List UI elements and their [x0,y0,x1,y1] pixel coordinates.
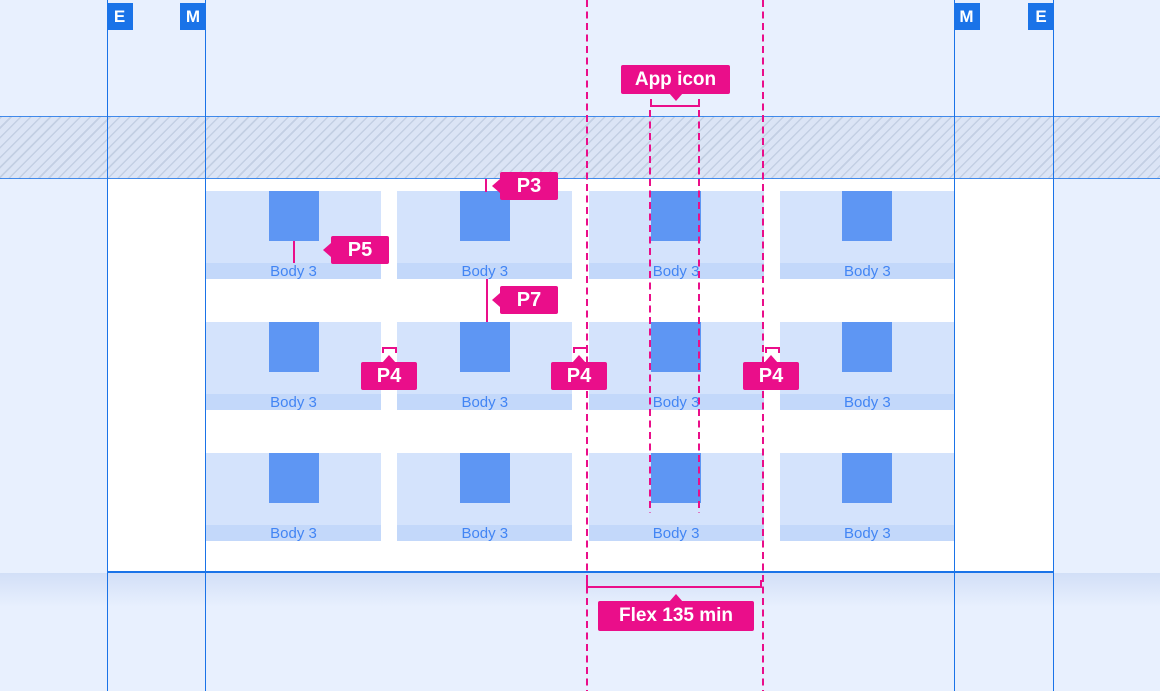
top-app-bar-hatched-region [0,116,1160,179]
margin-guide-line-right [954,0,956,691]
bottom-fade [0,573,1160,607]
pointer-left-icon [492,179,500,193]
label-p4-left: P4 [361,362,417,390]
card-caption: Body 3 [780,263,955,280]
label-app-icon: App icon [621,65,730,94]
label-p3: P3 [500,172,558,200]
pointer-up-icon [382,355,396,363]
card-caption: Body 3 [206,525,381,542]
p3-measure-tick [485,179,487,192]
column-gap-bracket-left [382,347,397,353]
label-flex-min-text: Flex 135 min [619,605,733,627]
card: Body 3 [206,453,381,541]
app-icon-placeholder [842,453,892,503]
card-caption: Body 3 [206,263,381,280]
app-icon-placeholder [651,322,701,372]
column-gap-bracket-middle [573,347,588,353]
label-p4-right: P4 [743,362,799,390]
p5-measure-tick [293,241,295,263]
pointer-up-icon [764,355,778,363]
column-gap-bracket-right [765,347,780,353]
app-icon-placeholder [269,453,319,503]
label-p7: P7 [500,286,558,314]
pointer-left-icon [323,243,331,257]
card: Body 3 [589,322,764,410]
edge-marker-e-right: E [1028,3,1054,30]
card-caption: Body 3 [397,394,572,411]
card: Body 3 [397,191,572,279]
card-caption: Body 3 [780,394,955,411]
card-caption: Body 3 [206,394,381,411]
app-icon-placeholder [269,191,319,241]
card: Body 3 [780,453,955,541]
label-p3-text: P3 [517,175,541,198]
card: Body 3 [397,322,572,410]
card: Body 3 [589,191,764,279]
margin-guide-line-left [205,0,207,691]
app-icon-placeholder [460,322,510,372]
card-caption: Body 3 [589,394,764,411]
label-p7-text: P7 [517,289,541,312]
label-p4-right-text: P4 [759,365,783,388]
app-icon-guide-right [698,110,700,513]
card-caption: Body 3 [397,525,572,542]
card-caption: Body 3 [589,525,764,542]
app-icon-guide-left [649,110,651,513]
card: Body 3 [206,191,381,279]
app-icon-placeholder [460,453,510,503]
pointer-up-icon [572,355,586,363]
edge-guide-line-right [1053,0,1055,691]
pointer-up-icon [669,594,683,602]
card: Body 3 [397,453,572,541]
margin-marker-m-right: M [954,3,980,30]
layout-spec-canvas: Body 3 Body 3 Body 3 Body 3 Body 3 Body … [0,0,1160,691]
card: Body 3 [780,322,955,410]
flex-width-bracket [586,580,762,588]
edge-guide-line-left [107,0,109,691]
app-icon-placeholder [842,191,892,241]
label-app-icon-text: App icon [635,69,716,91]
label-flex-min: Flex 135 min [598,601,754,631]
p7-measure-tick [486,279,488,322]
content-bottom-divider [107,571,1055,574]
card: Body 3 [780,191,955,279]
app-icon-placeholder [651,453,701,503]
card: Body 3 [206,322,381,410]
label-p5-text: P5 [348,239,372,262]
pointer-left-icon [492,293,500,307]
app-icon-placeholder [651,191,701,241]
card: Body 3 [589,453,764,541]
margin-marker-m-left: M [180,3,206,30]
card-caption: Body 3 [397,263,572,280]
app-icon-placeholder [269,322,319,372]
label-p4-middle-text: P4 [567,365,591,388]
app-icon-placeholder [842,322,892,372]
pointer-down-icon [669,93,683,101]
label-p4-left-text: P4 [377,365,401,388]
card-caption: Body 3 [780,525,955,542]
edge-marker-e-left: E [107,3,133,30]
label-p5: P5 [331,236,389,264]
label-p4-middle: P4 [551,362,607,390]
card-caption: Body 3 [589,263,764,280]
